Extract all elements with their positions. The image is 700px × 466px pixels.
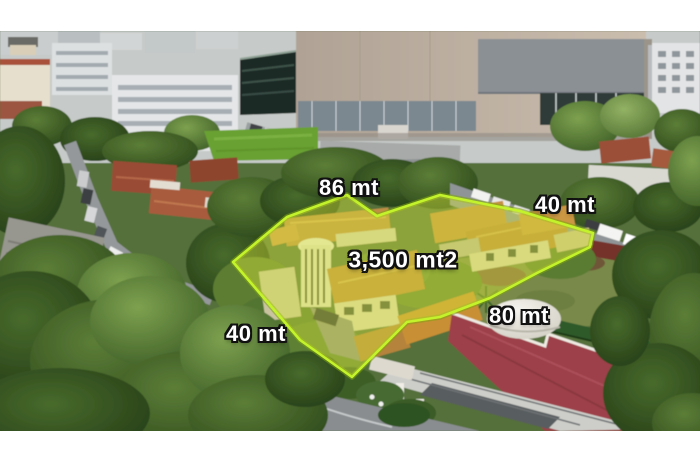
- top-white-frame-band: [0, 0, 700, 31]
- real-estate-listing-image: 86 mt 40 mt 3,500 mt2 80 mt 40 mt: [0, 0, 700, 466]
- lot-area-label: 3,500 mt2: [348, 247, 457, 274]
- lot-side-top-label: 86 mt: [319, 175, 379, 201]
- aerial-photo: 86 mt 40 mt 3,500 mt2 80 mt 40 mt: [0, 31, 700, 431]
- lot-side-bottom-right-label: 80 mt: [489, 303, 549, 329]
- bottom-white-frame-band: [0, 431, 700, 466]
- scene-svg: [0, 31, 700, 431]
- lot-side-right-label: 40 mt: [535, 192, 595, 218]
- dark-glass-building: [240, 51, 296, 115]
- lot-side-bottom-left-label: 40 mt: [226, 321, 286, 347]
